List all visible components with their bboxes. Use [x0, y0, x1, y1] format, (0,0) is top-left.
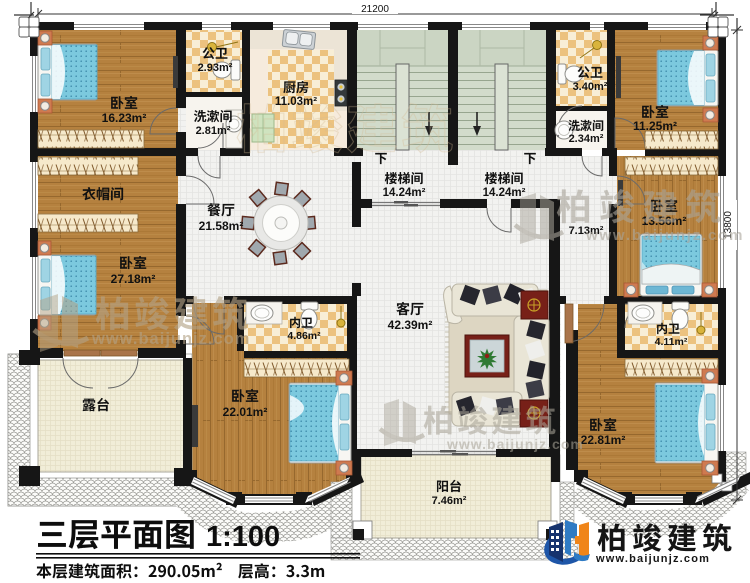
- svg-text:www.baijunjz.com: www.baijunjz.com: [446, 436, 584, 452]
- svg-text:4.86m²: 4.86m²: [287, 330, 321, 342]
- svg-text:www.baijunjz.com: www.baijunjz.com: [585, 227, 744, 244]
- svg-text:21.58m²: 21.58m²: [199, 219, 244, 233]
- svg-text:27.18m²: 27.18m²: [111, 272, 156, 286]
- svg-text:4.11m²: 4.11m²: [655, 336, 688, 348]
- svg-text:21200: 21200: [361, 4, 389, 15]
- svg-text:2.93m²: 2.93m²: [198, 62, 233, 74]
- svg-text:11.25m²: 11.25m²: [633, 119, 677, 133]
- svg-text:1:100: 1:100: [206, 521, 280, 553]
- svg-text:2.81m²: 2.81m²: [196, 125, 231, 137]
- svg-text:42.39m²: 42.39m²: [388, 318, 433, 332]
- svg-text:www.baijunjz.com: www.baijunjz.com: [91, 330, 250, 348]
- svg-text:7.46m²: 7.46m²: [432, 495, 467, 507]
- svg-text:14.24m²: 14.24m²: [383, 187, 426, 199]
- svg-text:22.01m²: 22.01m²: [223, 405, 268, 419]
- svg-text:www.baijunjz.com: www.baijunjz.com: [595, 553, 710, 565]
- svg-text:16.23m²: 16.23m²: [102, 111, 147, 125]
- svg-text:3.40m²: 3.40m²: [573, 81, 608, 93]
- svg-text:11.03m²: 11.03m²: [275, 96, 317, 108]
- svg-text:14.24m²: 14.24m²: [483, 187, 526, 199]
- svg-text:22.81m²: 22.81m²: [581, 433, 626, 447]
- svg-text:2.34m²: 2.34m²: [569, 133, 604, 145]
